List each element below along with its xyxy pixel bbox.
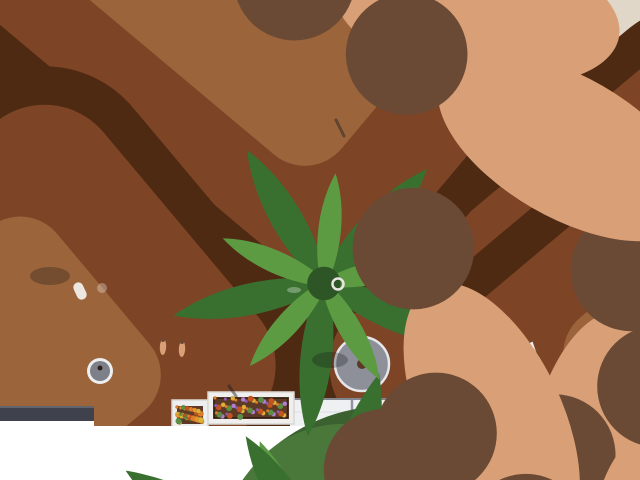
flower — [214, 404, 217, 407]
flower — [175, 405, 178, 408]
flower — [231, 396, 236, 401]
flower — [266, 409, 269, 412]
flower-balcony-bottom-partial — [172, 400, 208, 427]
flower — [224, 398, 227, 401]
flower — [221, 403, 226, 408]
flower — [176, 412, 179, 415]
palm-shadow — [30, 267, 70, 285]
flower — [283, 402, 288, 407]
flower — [183, 414, 186, 417]
flower — [277, 410, 280, 413]
flower — [248, 396, 254, 402]
palm-shadow — [312, 352, 348, 368]
splash — [97, 283, 107, 293]
lower-roof-edge — [0, 406, 94, 421]
flower — [179, 413, 182, 416]
flower — [242, 405, 247, 410]
flower — [215, 411, 218, 414]
aerial-render-scene — [0, 0, 640, 480]
swim-wake — [287, 287, 301, 293]
flower — [198, 417, 204, 423]
scene-svg — [0, 0, 640, 480]
flower — [176, 418, 182, 424]
flower-balcony-bottom — [208, 392, 294, 424]
flower — [268, 398, 274, 404]
flower — [225, 412, 228, 415]
flower — [241, 397, 246, 402]
flower — [196, 409, 201, 414]
flower — [256, 408, 259, 411]
flower — [237, 414, 243, 420]
flower — [231, 404, 236, 409]
flower — [213, 396, 216, 399]
flower — [258, 397, 264, 403]
flower — [187, 414, 190, 417]
